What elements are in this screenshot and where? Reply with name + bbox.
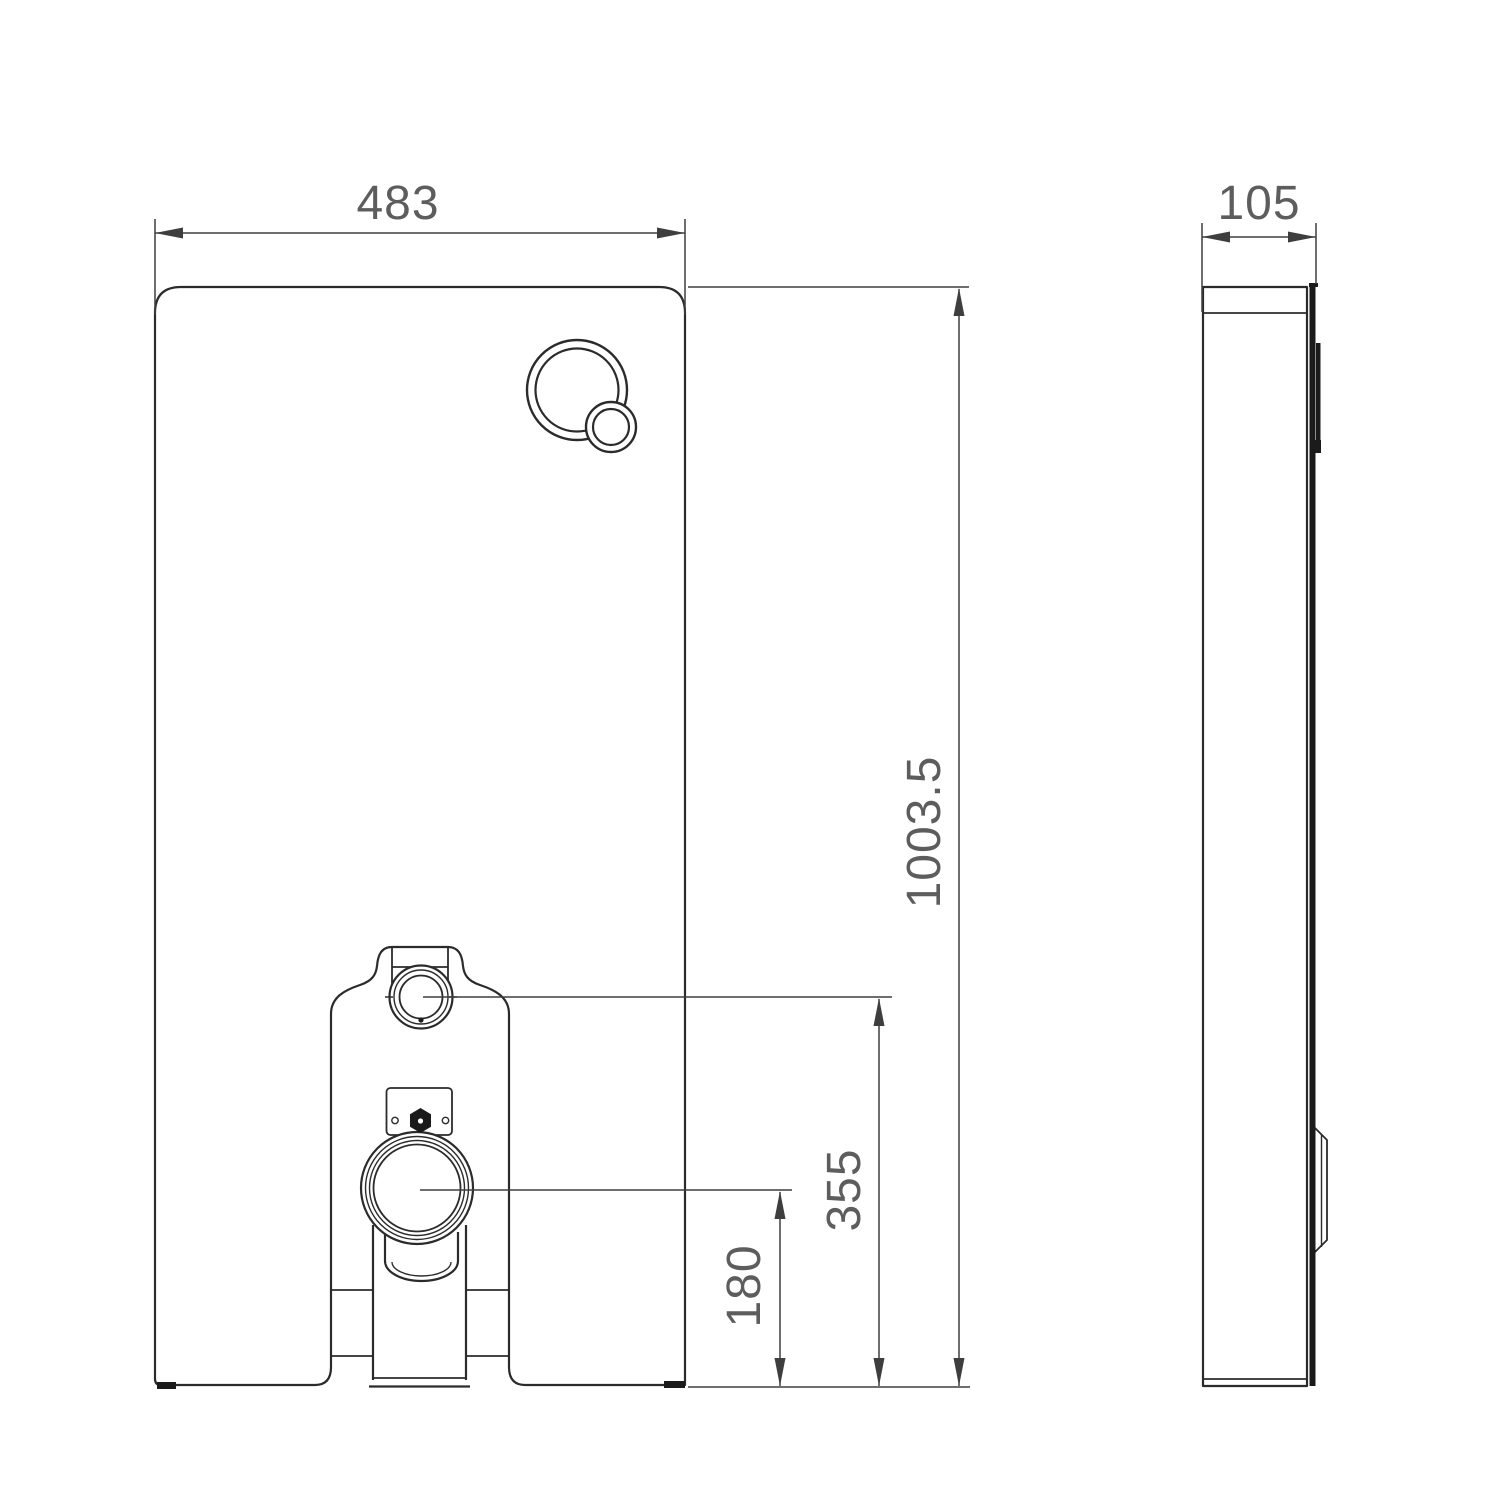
drain-outlet bbox=[361, 1132, 473, 1244]
valve-nut-center bbox=[418, 1118, 423, 1123]
front-view bbox=[155, 287, 685, 1389]
bracket-connector-lines bbox=[331, 1290, 509, 1356]
dim-front-height-value: 1003.5 bbox=[898, 756, 951, 909]
dim-supply-height-value: 355 bbox=[818, 1148, 871, 1231]
dim-outlet-height-value: 180 bbox=[718, 1244, 771, 1327]
dim-arrow-right bbox=[657, 228, 685, 239]
panel-foot-right bbox=[664, 1381, 685, 1388]
dim-arrow-down bbox=[874, 1358, 885, 1386]
dim-arrow-left bbox=[155, 228, 183, 239]
dim-arrow-right bbox=[1288, 232, 1316, 243]
side-body bbox=[1203, 287, 1307, 1386]
dim-side-depth-value: 105 bbox=[1217, 177, 1300, 230]
drain-outlet-outer-ring bbox=[361, 1132, 473, 1244]
dim-arrow-down bbox=[775, 1358, 786, 1386]
dim-front-width-value: 483 bbox=[356, 177, 439, 230]
dim-arrow-down bbox=[954, 1358, 965, 1386]
drawing-canvas: 483 1003.5 355 180 105 bbox=[0, 0, 1500, 1500]
dim-arrow-left bbox=[1202, 232, 1230, 243]
dim-arrow-up bbox=[954, 288, 965, 316]
technical-drawing: 483 1003.5 355 180 105 bbox=[0, 0, 1500, 1500]
panel-foot-left bbox=[157, 1382, 176, 1389]
side-view bbox=[1203, 283, 1327, 1386]
dim-arrow-up bbox=[775, 1191, 786, 1219]
outlet-pipe-bend-inner bbox=[392, 1262, 451, 1276]
water-supply-connection bbox=[385, 947, 457, 1029]
side-flush-button-bar bbox=[1316, 343, 1321, 443]
supply-bottom-dot bbox=[418, 1017, 423, 1022]
side-flush-button-clip bbox=[1314, 440, 1322, 453]
outlet-column bbox=[369, 1225, 470, 1387]
dim-arrow-up bbox=[874, 998, 885, 1026]
